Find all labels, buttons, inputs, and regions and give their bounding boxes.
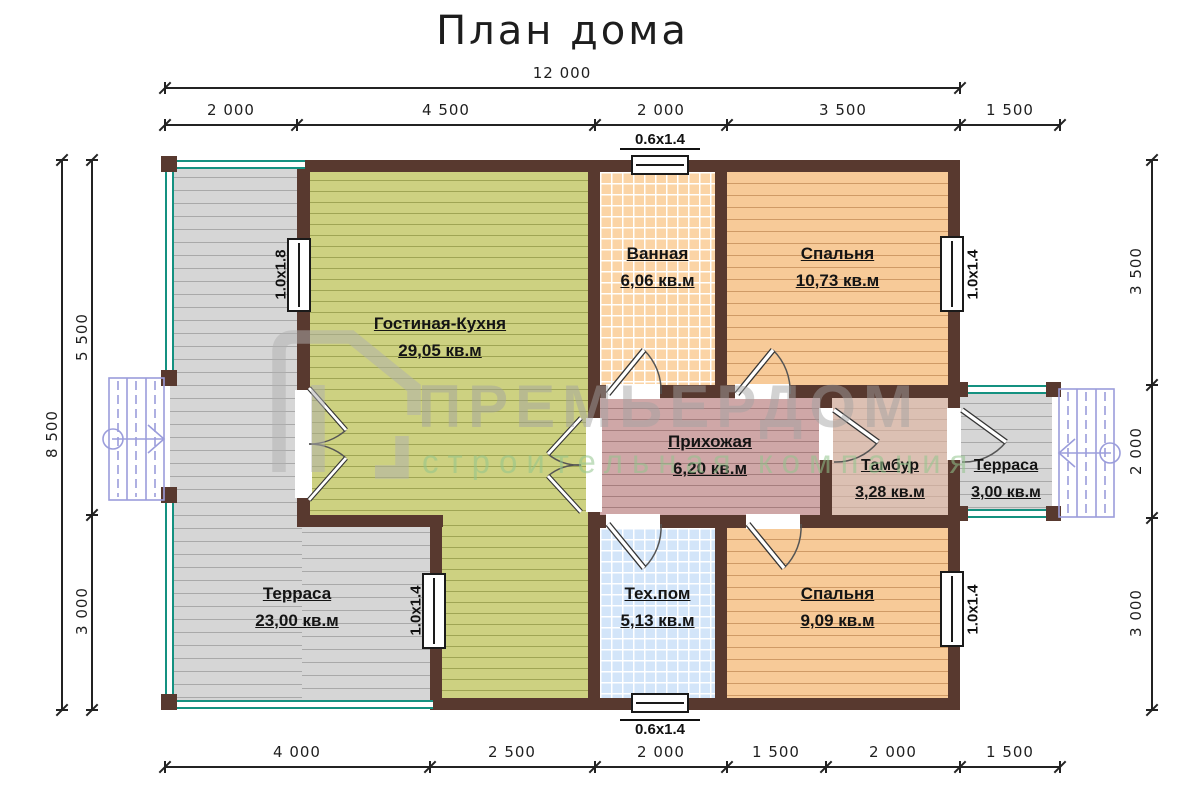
door-bath — [604, 336, 664, 398]
dim-tick — [825, 761, 827, 773]
dim-line-top-segments — [165, 124, 1060, 126]
dim-top-1: 4 500 — [396, 101, 496, 119]
terrace-right-railing-bottom — [957, 509, 1059, 518]
dim-bottom-1: 2 500 — [462, 743, 562, 761]
dim-tick — [164, 82, 166, 94]
room-area: 5,13 кв.м — [600, 607, 715, 634]
door-bedroom2 — [744, 520, 804, 582]
dim-tick — [959, 82, 961, 94]
window-label-bedroom1: 1.0x1.4 — [965, 235, 982, 315]
window-label-living-lower: 1.0x1.4 — [408, 571, 425, 651]
dim-top-3: 3 500 — [793, 101, 893, 119]
window-living-lower — [422, 573, 446, 649]
room-name: Спальня — [727, 240, 948, 267]
room-living-fill-ext — [440, 515, 592, 701]
room-label-bedroom1: Спальня 10,73 кв.м — [727, 240, 948, 294]
dim-bottom-0: 4 000 — [247, 743, 347, 761]
dim-line-left-segments — [91, 160, 93, 710]
dim-tick — [1146, 159, 1158, 161]
window-bottom — [631, 693, 689, 713]
dim-tick — [594, 761, 596, 773]
room-name: Гостиная-Кухня — [340, 310, 540, 337]
dim-tick — [726, 761, 728, 773]
dim-tick — [86, 709, 98, 711]
dim-right-1: 2 000 — [1127, 411, 1145, 491]
room-name: Спальня — [727, 580, 948, 607]
room-area: 3,28 кв.м — [832, 479, 948, 506]
door-french-terrace — [306, 384, 360, 504]
dim-bottom-3: 1 500 — [726, 743, 826, 761]
room-area: 9,09 кв.м — [727, 607, 948, 634]
dim-tick — [594, 119, 596, 131]
terrace-railing-bottom — [165, 700, 433, 709]
dim-tick — [959, 761, 961, 773]
room-name: Прихожая — [610, 428, 810, 455]
window-label-bedroom2: 1.0x1.4 — [965, 570, 982, 650]
door-opening — [586, 418, 602, 512]
dim-tick — [56, 709, 68, 711]
window-label-living-left: 1.0x1.8 — [273, 235, 290, 315]
dim-left-total: 8 500 — [43, 394, 61, 474]
dim-left-1: 3 000 — [73, 571, 91, 651]
dim-tick — [1146, 384, 1158, 386]
room-name: Терраса — [197, 580, 397, 607]
room-label-hall: Прихожая 6,20 кв.м — [610, 428, 810, 482]
dim-tick — [86, 514, 98, 516]
room-label-terrace-left: Терраса 23,00 кв.м — [197, 580, 397, 634]
dim-top-4: 1 500 — [960, 101, 1060, 119]
dim-bottom-4: 2 000 — [843, 743, 943, 761]
terrace-right-post — [953, 382, 968, 397]
room-name: Тех.пом — [600, 580, 715, 607]
window-label-top: 0.6x1.4 — [620, 131, 700, 150]
dim-line-left-total — [61, 160, 63, 710]
dim-bottom-5: 1 500 — [960, 743, 1060, 761]
window-living-left — [287, 238, 311, 312]
room-label-living: Гостиная-Кухня 29,05 кв.м — [340, 310, 540, 364]
wall-step-horizontal — [297, 515, 443, 527]
dim-tick — [164, 761, 166, 773]
dim-tick — [1059, 761, 1061, 773]
room-label-bath: Ванная 6,06 кв.м — [595, 240, 720, 294]
dim-left-0: 5 500 — [73, 297, 91, 377]
dim-right-2: 3 000 — [1127, 573, 1145, 653]
room-name: Терраса — [952, 452, 1060, 479]
dim-top-2: 2 000 — [611, 101, 711, 119]
room-name: Тамбур — [832, 452, 948, 479]
dim-right-0: 3 500 — [1127, 231, 1145, 311]
room-area: 6,06 кв.м — [595, 267, 720, 294]
porch-left-stairs — [108, 377, 165, 501]
terrace-right-post — [953, 506, 968, 521]
dim-tick — [164, 119, 166, 131]
terrace-railing-top — [165, 160, 305, 169]
dim-top-total: 12 000 — [512, 64, 612, 82]
dim-line-top-total — [165, 87, 960, 89]
room-label-tech: Тех.пом 5,13 кв.м — [600, 580, 715, 634]
dim-tick — [296, 119, 298, 131]
dim-tick — [726, 119, 728, 131]
dim-tick — [56, 159, 68, 161]
dim-tick — [1146, 709, 1158, 711]
wall-top — [297, 160, 960, 172]
room-label-bedroom2: Спальня 9,09 кв.м — [727, 580, 948, 634]
room-area: 10,73 кв.м — [727, 267, 948, 294]
window-top — [631, 155, 689, 175]
terrace-post — [161, 694, 177, 710]
dim-tick — [429, 761, 431, 773]
terrace-right-railing-top — [957, 385, 1059, 394]
dim-tick — [86, 159, 98, 161]
door-french-hall — [530, 414, 584, 516]
wall-tech-bedroom2 — [715, 515, 727, 710]
dim-line-right — [1151, 160, 1153, 710]
dim-top-0: 2 000 — [181, 101, 281, 119]
floor-plan-canvas: План дома — [0, 0, 1200, 800]
door-bedroom1 — [733, 336, 793, 398]
dim-bottom-2: 2 000 — [611, 743, 711, 761]
porch-right-stairs — [1058, 388, 1115, 518]
room-area: 23,00 кв.м — [197, 607, 397, 634]
room-area: 6,20 кв.м — [610, 455, 810, 482]
room-label-tambour: Тамбур 3,28 кв.м — [832, 452, 948, 506]
dim-tick — [1059, 119, 1061, 131]
room-name: Ванная — [595, 240, 720, 267]
room-area: 29,05 кв.м — [340, 337, 540, 364]
window-label-bottom: 0.6x1.4 — [620, 719, 700, 738]
dim-tick — [959, 119, 961, 131]
room-label-terrace-right: Терраса 3,00 кв.м — [952, 452, 1060, 506]
terrace-post — [161, 156, 177, 172]
wall-bottom — [430, 698, 960, 710]
terrace-railing-left-upper — [165, 168, 174, 373]
room-area: 3,00 кв.м — [952, 479, 1060, 506]
page-title: План дома — [165, 8, 960, 54]
door-tech — [604, 520, 664, 582]
terrace-railing-left-lower — [165, 500, 174, 700]
dim-line-bottom — [165, 766, 1060, 768]
dim-tick — [1146, 517, 1158, 519]
